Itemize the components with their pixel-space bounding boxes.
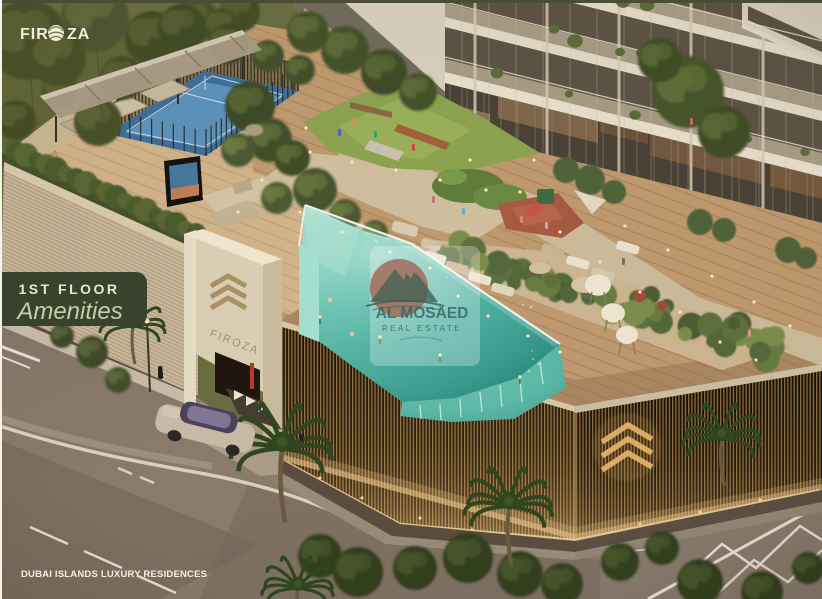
svg-text:DUBAI ISLANDS LUXURY RESIDENCE: DUBAI ISLANDS LUXURY RESIDENCES: [21, 569, 207, 580]
svg-text:REAL ESTATE: REAL ESTATE: [382, 324, 462, 333]
svg-text:FIR: FIR: [20, 26, 49, 43]
svg-text:AL MOSAED: AL MOSAED: [376, 305, 469, 322]
svg-text:Amenities: Amenities: [15, 298, 122, 325]
svg-text:ZA: ZA: [67, 26, 90, 43]
svg-text:1ST FLOOR: 1ST FLOOR: [18, 281, 119, 297]
